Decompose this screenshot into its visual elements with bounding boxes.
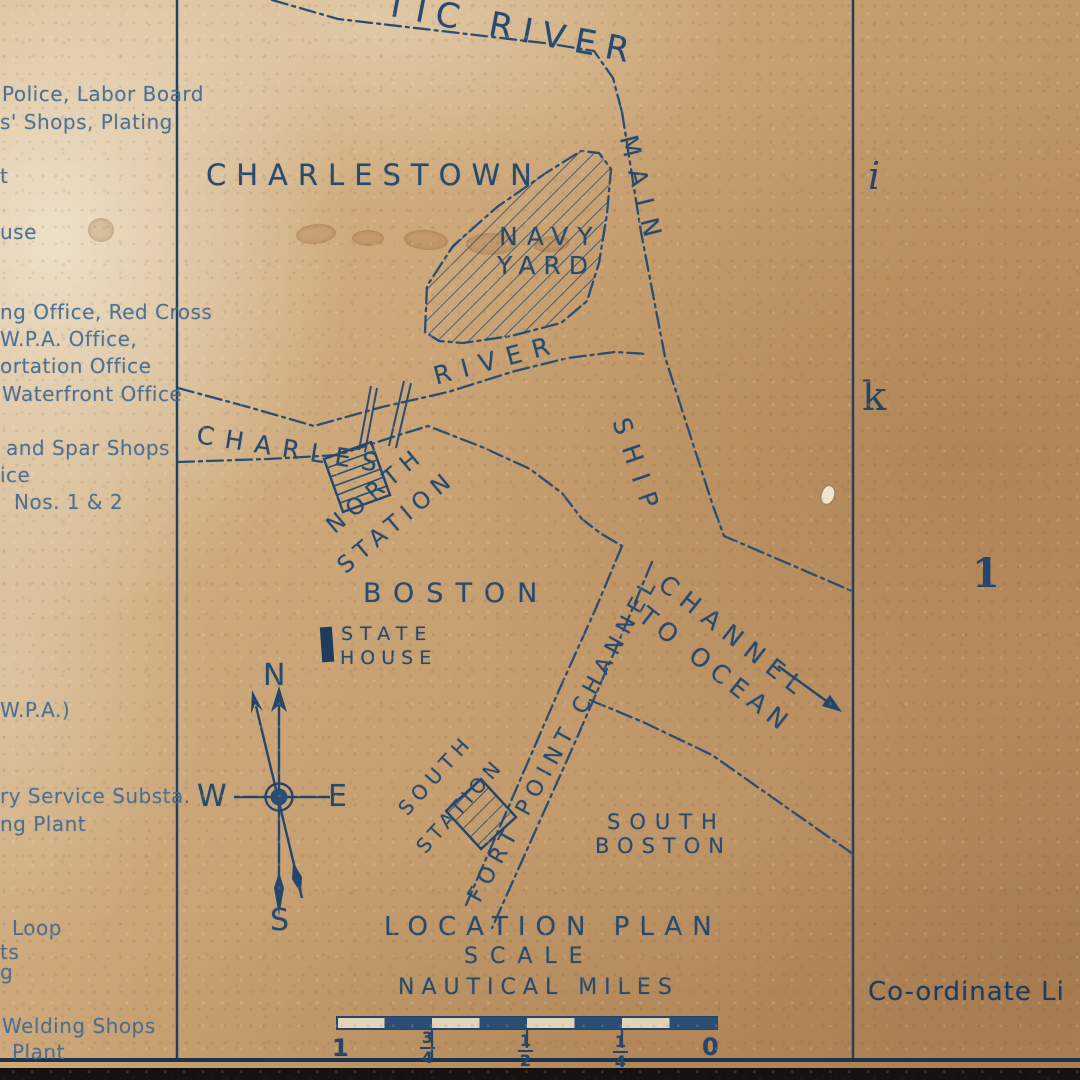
fraction-numerator: 1 (615, 1034, 626, 1050)
navy-yard-label-line1: NAVY (499, 222, 602, 251)
fraction-denominator: 2 (520, 1053, 531, 1069)
scale-title: SCALE (464, 944, 595, 969)
location-plan-title: LOCATION PLAN (384, 912, 722, 942)
scale-label-one: 1 (332, 1034, 349, 1062)
scale-label-three-quarters: 3 4 (420, 1030, 435, 1066)
left-list-item: Police, Labor Board (2, 82, 204, 106)
compass-north-label: N (263, 658, 285, 693)
margin-letter-i: i (868, 154, 880, 198)
south-boston-label-line1: SOUTH (607, 810, 726, 834)
charles-river-north-bank (178, 352, 648, 426)
left-list-item: Plant (12, 1040, 65, 1064)
main-ship-channel-shoreline (622, 112, 852, 591)
compass-west-label: W (197, 779, 227, 814)
scale-label-one-half: 1 2 (518, 1033, 533, 1069)
margin-letter-k: k (862, 374, 886, 420)
left-list-item: ry Service Substa. (0, 784, 191, 808)
left-list-item: g (0, 960, 13, 984)
left-list-item: s' Shops, Plating (0, 110, 173, 134)
state-house-marker (320, 627, 334, 663)
left-list-item: ortation Office (0, 354, 151, 378)
state-house-label-line2: HOUSE (340, 647, 437, 669)
compass-rose-icon (234, 686, 330, 916)
compass-south-label: S (270, 903, 289, 938)
photo-bottom-edge (0, 1068, 1080, 1080)
left-list-item: W.P.A. Office, (0, 327, 137, 351)
charlestown-label: CHARLESTOWN (206, 158, 542, 192)
navy-yard-label-line2: YARD (497, 251, 596, 280)
fraction-numerator: 3 (422, 1030, 433, 1046)
scale-label-one-quarter: 1 4 (613, 1034, 628, 1070)
left-list-item: ng Plant (0, 812, 86, 836)
scale-label-zero: 0 (702, 1033, 719, 1061)
left-list-item: Waterfront Office (2, 382, 182, 406)
boston-label: BOSTON (363, 578, 549, 609)
compass-east-label: E (328, 779, 347, 814)
blueprint-map-photo: Police, Labor Board s' Shops, Plating t … (0, 0, 1080, 1080)
left-list-item: and Spar Shops (6, 436, 170, 460)
state-house-label-line1: STATE (341, 623, 433, 645)
left-list-item: ice (0, 463, 30, 487)
left-list-item: use (0, 220, 37, 244)
left-list-item: ng Office, Red Cross (0, 300, 212, 324)
left-list-item: W.P.A.) (0, 698, 70, 722)
nautical-miles-title: NAUTICAL MILES (398, 975, 679, 1000)
fraction-numerator: 1 (520, 1033, 531, 1049)
bridges (359, 381, 411, 452)
fraction-denominator: 4 (422, 1050, 433, 1066)
left-list-item: Loop (12, 916, 62, 940)
margin-number-1: 1 (972, 550, 1000, 597)
left-list-item: Welding Shops (2, 1014, 156, 1038)
south-boston-label-line2: BOSTON (595, 834, 732, 858)
left-list-item: t (0, 164, 8, 188)
coordinate-lines-label: Co-ordinate Li (868, 977, 1065, 1007)
left-list-item: Nos. 1 & 2 (14, 490, 123, 514)
